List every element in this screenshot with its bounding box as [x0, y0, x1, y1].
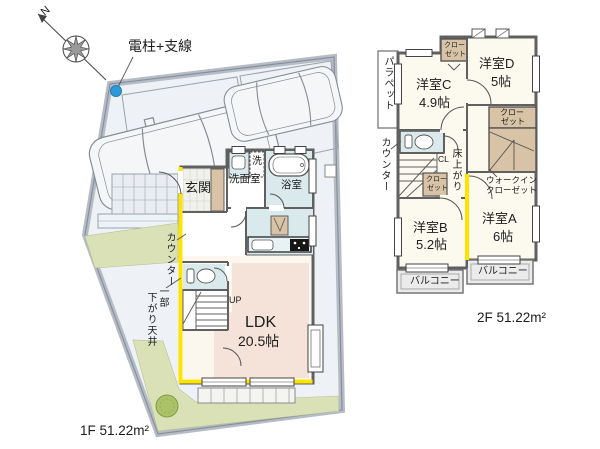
shoe-cabinet — [211, 169, 224, 211]
label-bath: 浴室 — [281, 180, 302, 191]
label-washroom: 洗面室 — [229, 174, 261, 185]
stove — [290, 239, 309, 251]
accent-wall-west — [179, 167, 183, 383]
label-ldk-size: 20.5帖 — [238, 334, 279, 348]
label-ceiling-note-1: 一部 — [157, 286, 167, 308]
label-room-a: 洋室A — [482, 212, 517, 225]
label-closet-top-1: クロー — [444, 42, 465, 49]
label-wic-1: ウォークイン — [486, 176, 537, 185]
label-ceiling-note-2: 下がり天井 — [145, 292, 155, 347]
label-counter-2f: カウンター — [379, 137, 389, 192]
label-room-b-size: 5.2帖 — [416, 238, 447, 251]
label-balcony-left: バルコニー — [410, 277, 460, 287]
label-closet-top-2: ゼット — [445, 51, 466, 58]
room-kitchen — [246, 209, 313, 255]
label-closet-stairs-2: ゼット — [427, 185, 448, 192]
utility-pole-dot — [111, 86, 122, 97]
accent-wall-room-a — [465, 174, 469, 260]
room-toilet-2f — [400, 131, 444, 153]
compass-star — [63, 36, 89, 62]
label-room-d-size: 5帖 — [491, 75, 511, 88]
walk-in-closet — [489, 128, 536, 172]
label-genkan: 玄関 — [185, 181, 211, 194]
label-ldk: LDK — [245, 315, 276, 331]
label-area-2f: 2F 51.22m² — [477, 311, 546, 325]
room-toilet-1f — [183, 264, 227, 289]
label-stairs-up: UP — [229, 296, 242, 305]
kitchen-sink — [252, 240, 273, 250]
utility-pole-label: 電柱+支線 — [128, 39, 192, 53]
label-counter-1f: カウンター — [164, 232, 174, 287]
label-floor-step: 床上がり — [450, 148, 460, 192]
compass — [38, 14, 106, 80]
label-washer: 洗 — [252, 157, 262, 167]
label-area-1f: 1F 51.22m² — [80, 424, 149, 438]
garden-tree — [156, 395, 178, 417]
label-balcony-right: バルコニー — [478, 267, 528, 277]
label-cl: CL — [438, 155, 449, 164]
label-room-c: 洋室C — [416, 78, 451, 91]
deck — [198, 388, 295, 403]
label-parapet: パラペット — [382, 56, 392, 111]
floor-plan-canvas: N 電柱+支線 玄関 洗 洗面室 浴室 カウンター 一部 下がり天井 UP LD… — [0, 0, 600, 449]
label-room-c-size: 4.9帖 — [419, 96, 450, 109]
label-closet-right-1: クロー — [500, 109, 524, 117]
label-room-d: 洋室D — [479, 57, 514, 70]
label-room-a-size: 6帖 — [493, 230, 513, 243]
refrigerator — [271, 216, 288, 235]
stairs-1f — [183, 290, 228, 330]
label-wic-2: クローゼット — [486, 186, 537, 195]
meter-box — [325, 165, 336, 177]
label-closet-right-2: ゼット — [501, 118, 525, 126]
label-closet-stairs-1: クロー — [426, 176, 447, 183]
label-room-b: 洋室B — [413, 221, 448, 234]
